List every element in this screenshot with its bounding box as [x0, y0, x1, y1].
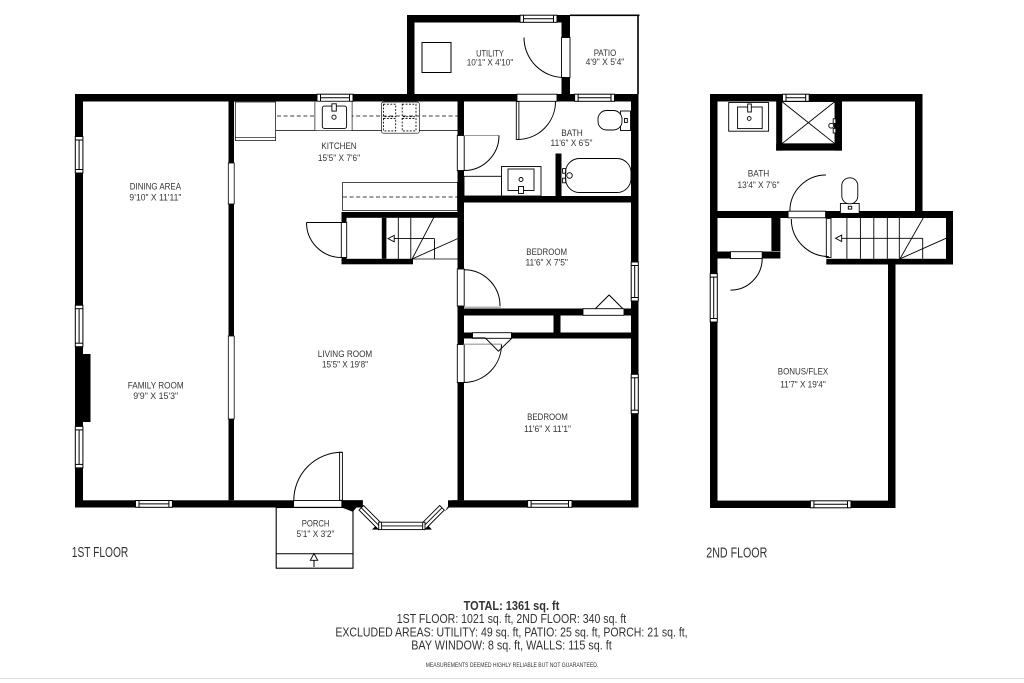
svg-text:1ST FLOOR: 1ST FLOOR — [72, 545, 129, 561]
svg-text:BEDROOM: BEDROOM — [526, 246, 567, 257]
svg-text:10’1" X 4'10": 10’1" X 4'10" — [467, 57, 514, 68]
svg-text:PORCH: PORCH — [302, 517, 330, 528]
svg-text:5'1" X 3'2": 5'1" X 3'2" — [297, 528, 335, 539]
svg-text:DINING AREA: DINING AREA — [130, 181, 182, 192]
svg-text:BAY WINDOW: 8 sq. ft, WALLS: 1: BAY WINDOW: 8 sq. ft, WALLS: 115 sq. ft — [411, 638, 612, 653]
svg-text:2ND FLOOR: 2ND FLOOR — [706, 546, 767, 562]
svg-text:BATH: BATH — [748, 167, 770, 178]
svg-text:11'7" X 19'4": 11'7" X 19'4" — [780, 378, 826, 389]
svg-text:4'9" X 5'4": 4'9" X 5'4" — [586, 56, 625, 67]
svg-text:9’10" X 11'11": 9’10" X 11'11" — [129, 192, 181, 203]
svg-text:11'6" X 6'5": 11'6" X 6'5" — [551, 137, 593, 148]
svg-text:13'4" X 7'6": 13'4" X 7'6" — [738, 179, 780, 190]
svg-text:9'9" X 15'3": 9'9" X 15'3" — [133, 390, 178, 401]
svg-text:FAMILY ROOM: FAMILY ROOM — [128, 379, 184, 390]
svg-text:BEDROOM: BEDROOM — [527, 411, 568, 422]
svg-text:KITCHEN: KITCHEN — [321, 140, 356, 151]
svg-text:MEASUREMENTS DEEMED HIGHLY REL: MEASUREMENTS DEEMED HIGHLY RELIABLE BUT … — [426, 662, 599, 669]
svg-text:LIVING ROOM: LIVING ROOM — [318, 348, 373, 359]
svg-text:BONUS/FLEX: BONUS/FLEX — [778, 365, 829, 376]
svg-text:11'6" X 11'1": 11'6" X 11'1" — [524, 423, 571, 434]
svg-text:15'5" X 19'8": 15'5" X 19'8" — [322, 359, 368, 370]
svg-text:11'6" X 7'5": 11'6" X 7'5" — [525, 256, 568, 267]
svg-text:15'5" X 7'6": 15'5" X 7'6" — [318, 152, 360, 163]
